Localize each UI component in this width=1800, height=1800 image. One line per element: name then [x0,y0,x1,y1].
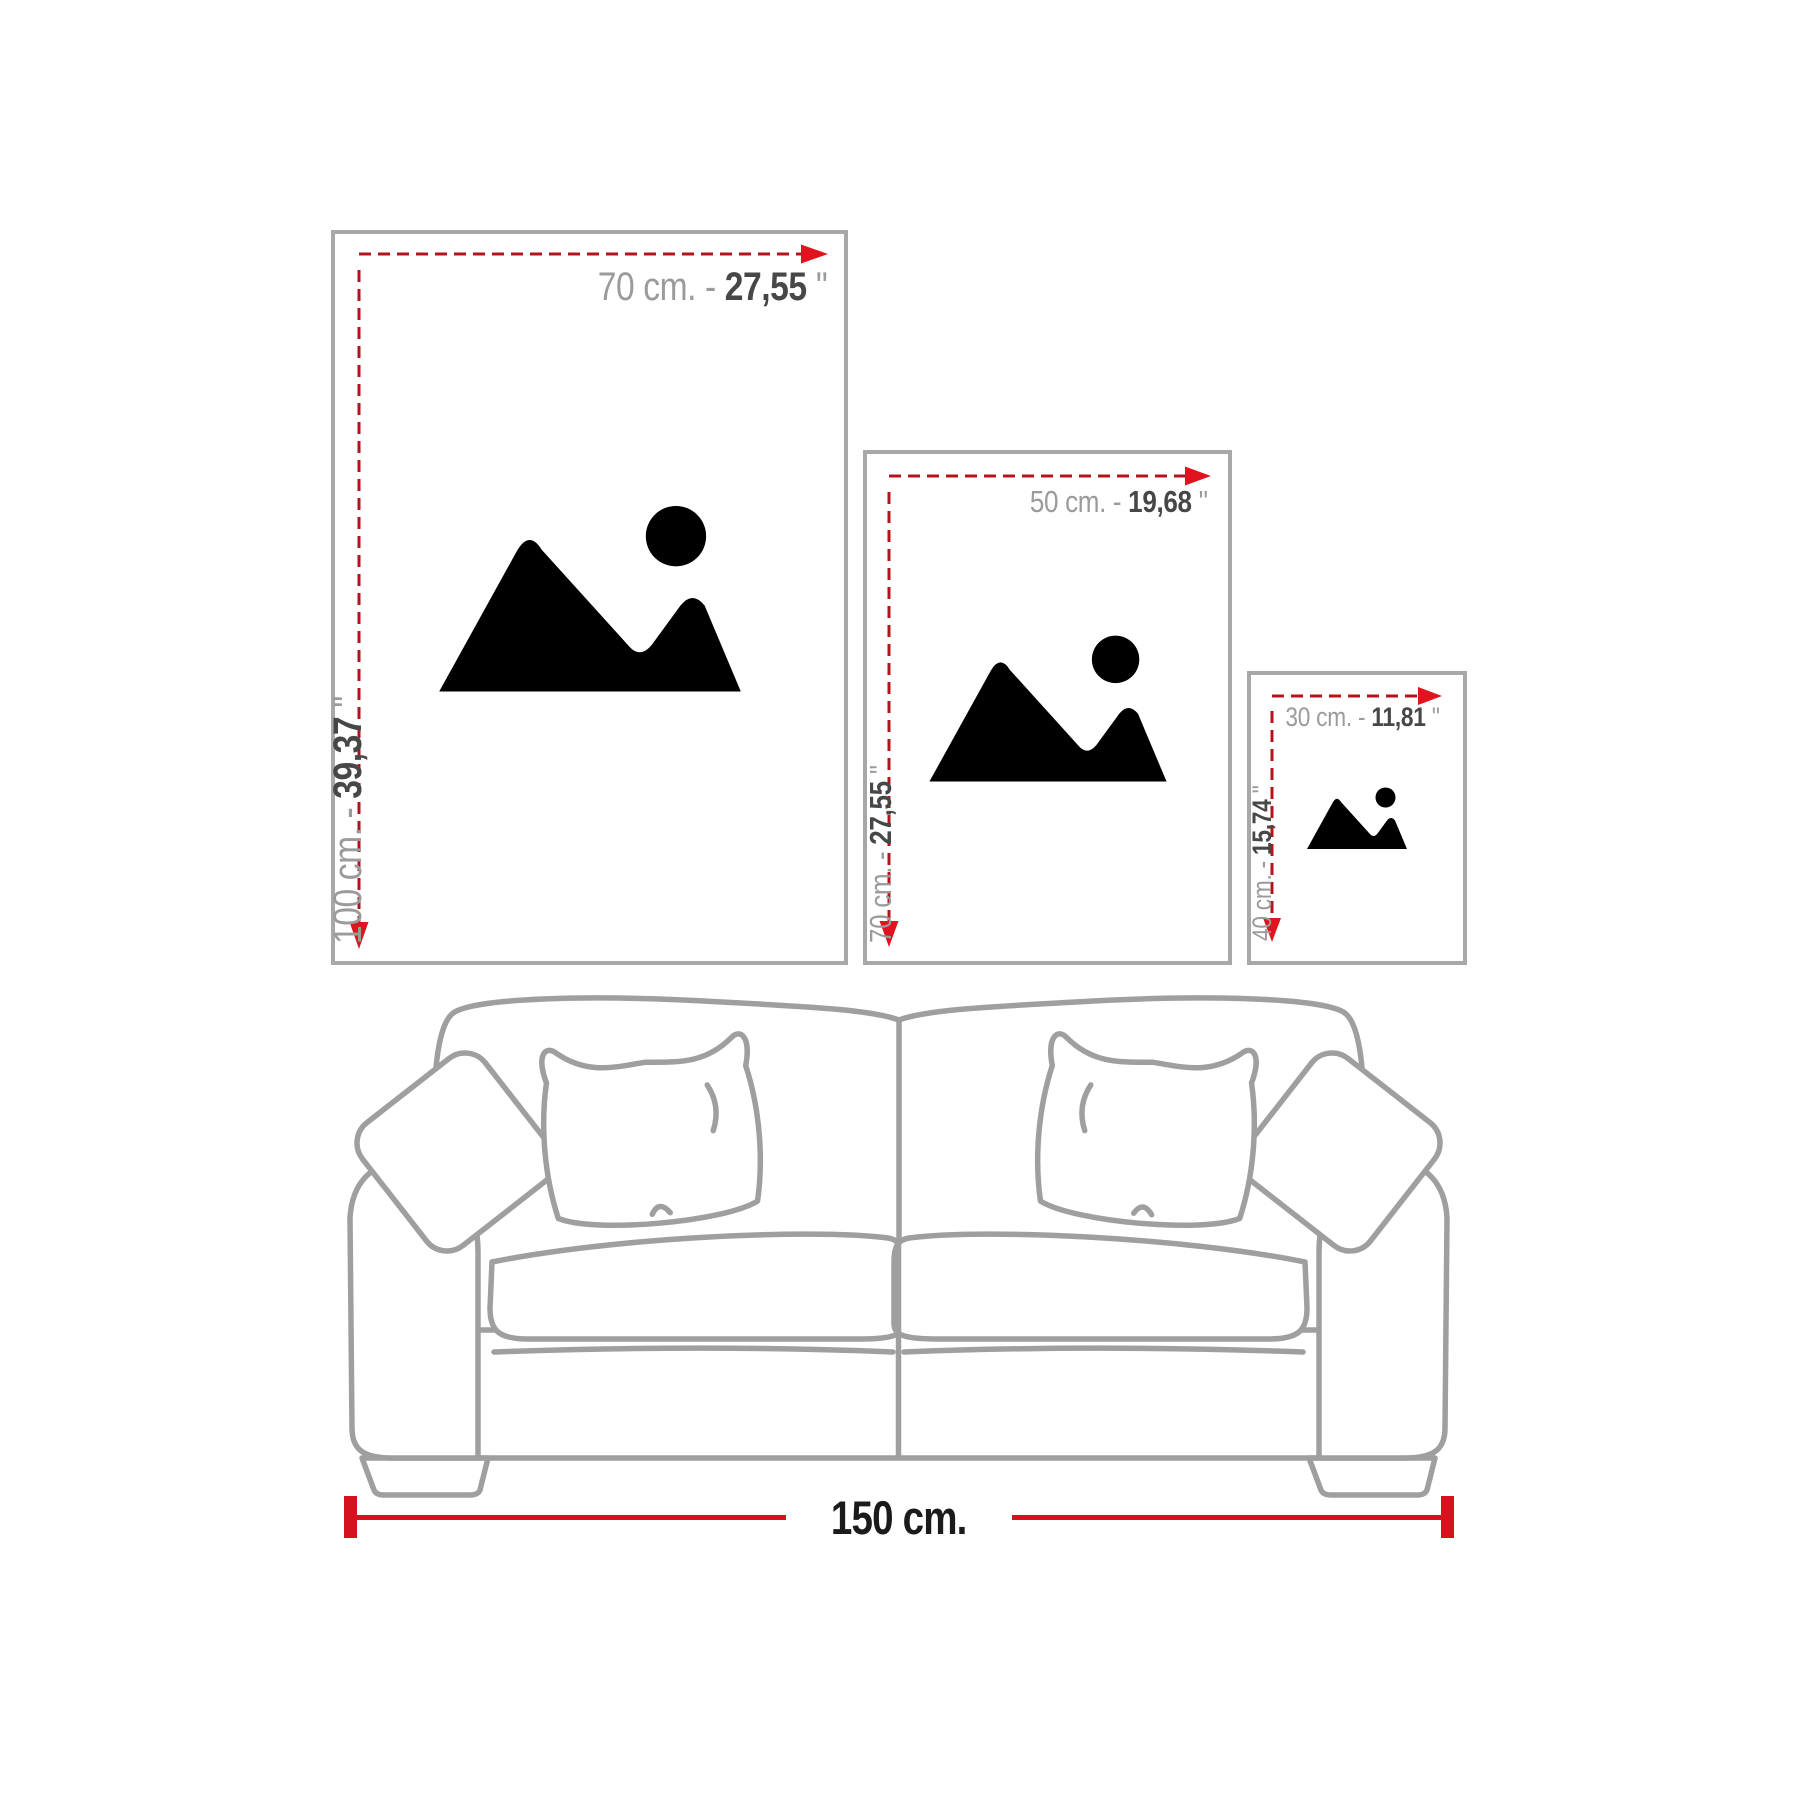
inch-mark: '' [863,765,898,781]
width-dimension-label: 70 cm. - 27,55 '' [598,267,828,307]
height-dimension-label: 40 cm. - 15,74 '' [1249,785,1276,941]
height-cm-value: 70 cm. [863,867,898,943]
height-dimension-label: 70 cm. - 27,55 '' [865,765,896,943]
image-placeholder-icon [1307,787,1407,849]
measure-end-cap-left [344,1496,357,1538]
sofa-width-measure: 150 cm. [344,1496,1454,1538]
inch-mark: '' [326,696,370,717]
inch-mark: '' [1426,702,1440,732]
measure-end-cap-right [1441,1496,1454,1538]
inch-mark: '' [1192,484,1208,519]
sofa-illustration [290,990,1510,1500]
frame-size-medium: 50 cm. - 19,68 '' 70 cm. - 27,55 '' [863,450,1232,965]
height-inch-value: 15,74 [1247,800,1277,856]
frame-size-small: 30 cm. - 11,81 '' 40 cm. - 15,74 '' [1247,671,1467,965]
sofa-seat-cushion-left [490,1234,903,1339]
measure-line-left [357,1515,786,1520]
width-cm-value: 70 cm. [598,265,696,309]
height-inch-value: 39,37 [326,717,370,799]
height-inch-value: 27,55 [863,781,898,844]
sofa-throw-pillow-left [536,1033,766,1233]
sofa-width-label: 150 cm. [831,1494,967,1541]
arrow-right-icon [1185,467,1211,486]
inch-mark: '' [1247,785,1277,799]
arrow-right-icon [801,245,828,264]
height-cm-value: 100 cm. [326,827,370,944]
width-inch-value: 19,68 [1128,484,1191,519]
width-inch-value: 11,81 [1372,702,1426,732]
sofa-base-seam-left [494,1348,893,1352]
image-placeholder-icon [929,634,1167,781]
width-dimension-label: 30 cm. - 11,81 '' [1286,704,1440,731]
frame-size-large: 70 cm. - 27,55 '' 100 cm. - 39,37 '' [331,230,848,965]
image-placeholder-icon [439,504,741,691]
sofa-seat-cushion-right [894,1234,1307,1339]
width-cm-value: 30 cm. [1286,702,1353,732]
sofa-base-seam-right [904,1348,1303,1352]
measure-line-right [1012,1515,1441,1520]
width-dimension-label: 50 cm. - 19,68 '' [1030,486,1208,517]
height-cm-value: 40 cm. [1247,874,1277,941]
sofa-leg-left [362,1458,488,1495]
size-guide-diagram: 70 cm. - 27,55 '' 100 cm. - 39,37 '' 50 … [0,0,1800,1800]
inch-mark: '' [807,265,828,309]
height-dimension-label: 100 cm. - 39,37 '' [328,696,368,944]
width-inch-value: 27,55 [725,265,807,309]
sofa-throw-pillow-right [1032,1033,1262,1233]
sofa-leg-right [1309,1458,1435,1495]
width-cm-value: 50 cm. [1030,484,1106,519]
